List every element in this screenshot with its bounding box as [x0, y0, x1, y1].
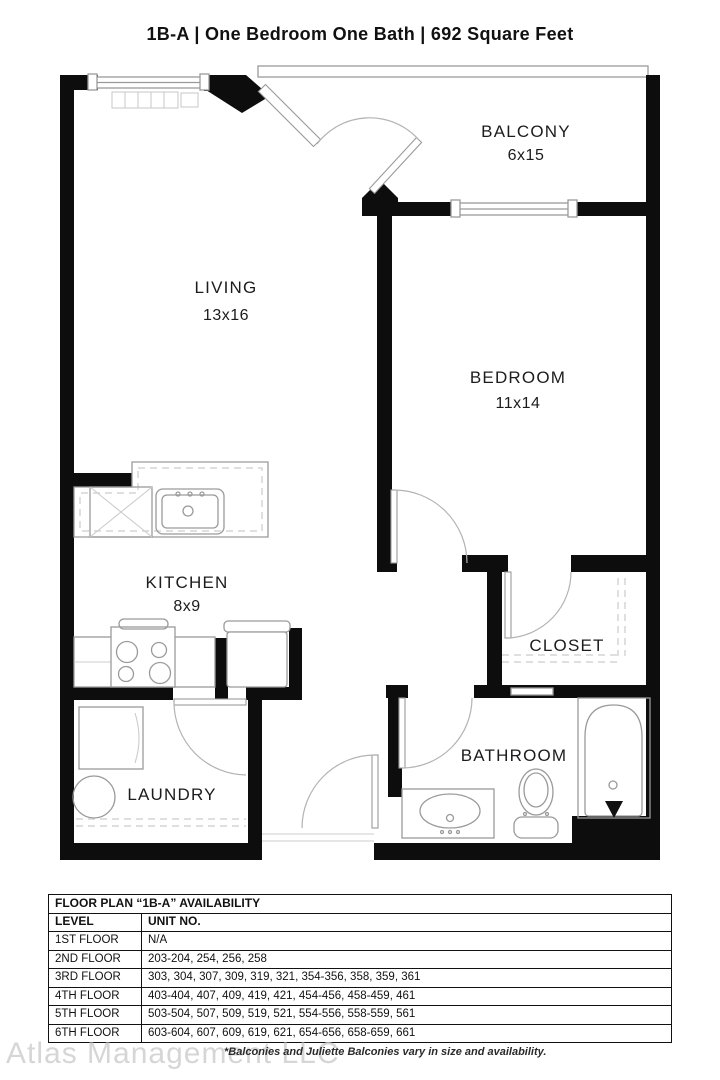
level-column-header: LEVEL — [49, 913, 142, 932]
dishwasher — [90, 487, 152, 537]
balcony-label: BALCONY — [481, 122, 571, 141]
units-cell: 303, 304, 307, 309, 319, 321, 354-356, 3… — [142, 969, 672, 988]
bedroom-window — [451, 200, 577, 217]
stove — [111, 619, 175, 687]
kitchen-label: KITCHEN — [145, 573, 228, 592]
availability-table-header-row: LEVEL UNIT NO. — [49, 913, 672, 932]
bathroom-label: BATHROOM — [461, 746, 568, 765]
level-cell: 2ND FLOOR — [49, 950, 142, 969]
toilet — [514, 769, 558, 838]
living-window — [88, 74, 209, 90]
bedroom-dims: 11x14 — [496, 395, 541, 412]
table-row: 3RD FLOOR 303, 304, 307, 309, 319, 321, … — [49, 969, 672, 988]
floorplan-page: 1B-A | One Bedroom One Bath | 692 Square… — [0, 0, 720, 1080]
kitchen-sink — [156, 489, 224, 534]
table-row: 1ST FLOOR N/A — [49, 932, 672, 951]
level-cell: 4TH FLOOR — [49, 987, 142, 1006]
entry-door — [262, 755, 378, 841]
bedroom-door — [391, 490, 467, 563]
bathtub — [578, 698, 650, 818]
laundry-tub — [73, 776, 115, 818]
table-row: 4TH FLOOR 403-404, 407, 409, 419, 421, 4… — [49, 987, 672, 1006]
bathroom-shelf-notch — [511, 688, 553, 695]
balcony-rail — [258, 66, 648, 77]
bedroom-label: BEDROOM — [470, 368, 566, 387]
refrigerator — [224, 621, 290, 687]
laundry-shelf-dashes — [76, 819, 246, 826]
balcony-dims: 6x15 — [508, 147, 545, 164]
living-label: LIVING — [195, 278, 258, 297]
balcony-disclaimer: *Balconies and Juliette Balconies vary i… — [224, 1046, 546, 1058]
vanity — [402, 789, 494, 838]
washer — [79, 707, 143, 769]
availability-table: FLOOR PLAN “1B-A” AVAILABILITY LEVEL UNI… — [48, 894, 672, 1043]
laundry-door — [174, 699, 246, 775]
units-cell: 203-204, 254, 256, 258 — [142, 950, 672, 969]
table-row: 2ND FLOOR 203-204, 254, 256, 258 — [49, 950, 672, 969]
closet-label: CLOSET — [529, 636, 604, 655]
units-cell: N/A — [142, 932, 672, 951]
level-cell: 3RD FLOOR — [49, 969, 142, 988]
units-column-header: UNIT NO. — [142, 913, 672, 932]
table-row: 5TH FLOOR 503-504, 507, 509, 519, 521, 5… — [49, 1006, 672, 1025]
units-cell: 403-404, 407, 409, 419, 421, 454-456, 45… — [142, 987, 672, 1006]
laundry-label: LAUNDRY — [127, 785, 216, 804]
availability-table-title: FLOOR PLAN “1B-A” AVAILABILITY — [49, 895, 672, 914]
kitchen-dims: 8x9 — [173, 598, 200, 615]
balcony-french-door — [259, 85, 422, 194]
units-cell: 503-504, 507, 509, 519, 521, 554-556, 55… — [142, 1006, 672, 1025]
floorplan-drawing: LIVING 13x16 BALCONY 6x15 BEDROOM 11x14 … — [0, 0, 720, 880]
level-cell: 5TH FLOOR — [49, 1006, 142, 1025]
level-cell: 1ST FLOOR — [49, 932, 142, 951]
availability-table-title-row: FLOOR PLAN “1B-A” AVAILABILITY — [49, 895, 672, 914]
baseboard-unit — [112, 92, 198, 108]
closet-door — [505, 572, 571, 638]
living-dims: 13x16 — [203, 307, 249, 324]
